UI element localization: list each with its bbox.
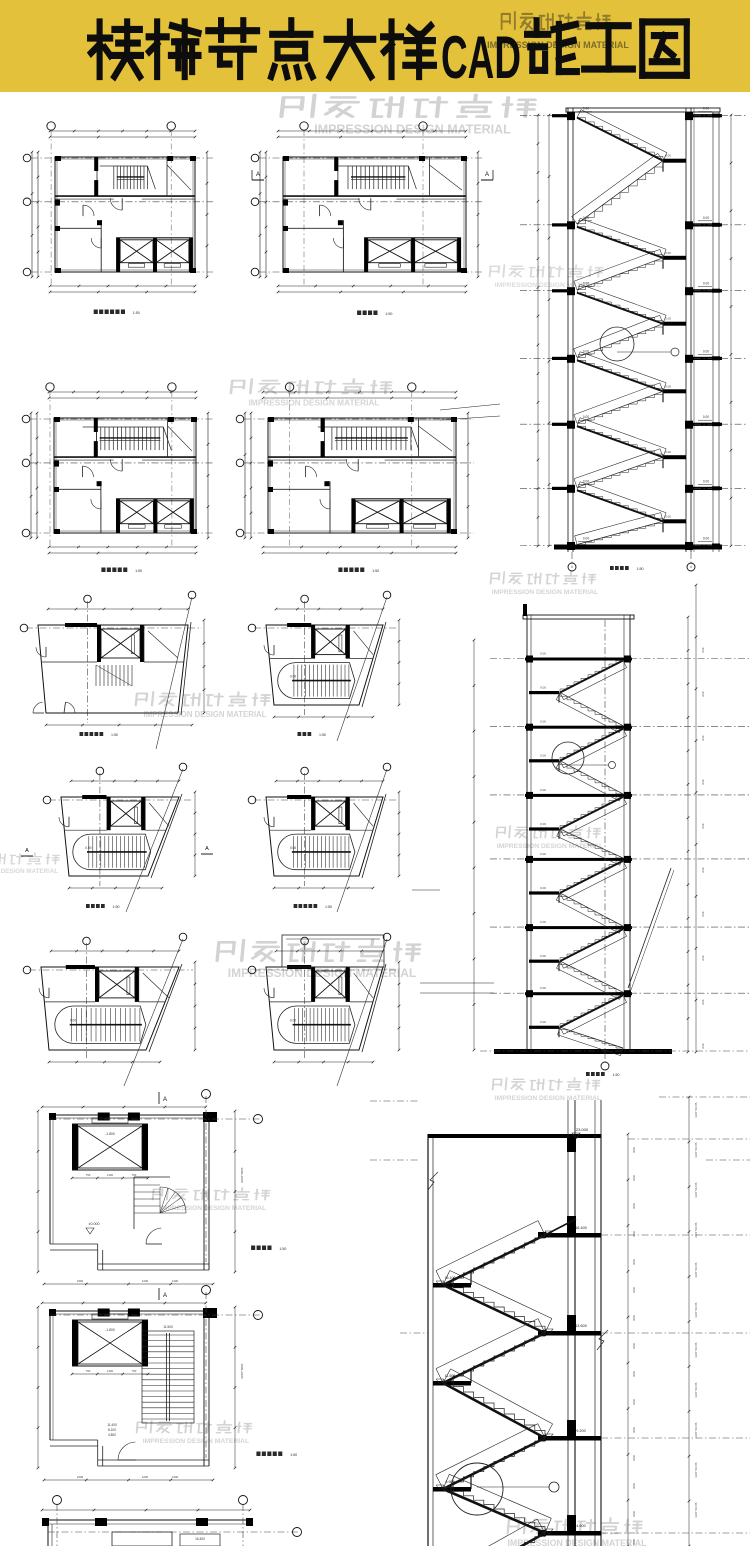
svg-text:4500: 4500 xyxy=(632,1231,636,1238)
svg-text:4500: 4500 xyxy=(632,1483,636,1490)
svg-text:0.00: 0.00 xyxy=(583,415,589,419)
svg-text:0.00: 0.00 xyxy=(583,282,589,286)
svg-text:1:50: 1:50 xyxy=(613,1073,620,1077)
svg-text:1:50: 1:50 xyxy=(279,1247,286,1251)
svg-text:8.100: 8.100 xyxy=(108,1428,116,1432)
svg-text:W4.50+4200: W4.50+4200 xyxy=(694,1503,698,1518)
svg-text:4500: 4500 xyxy=(632,1175,636,1182)
svg-text:1:50: 1:50 xyxy=(325,905,332,909)
svg-text:0.00: 0.00 xyxy=(290,675,296,679)
svg-text:4.800: 4.800 xyxy=(108,1433,116,1437)
svg-text:0.00: 0.00 xyxy=(540,788,546,792)
svg-text:4500: 4500 xyxy=(701,647,705,653)
svg-text:0.00: 0.00 xyxy=(540,652,546,656)
svg-text:3600+2300: 3600+2300 xyxy=(240,1167,244,1182)
svg-text:IMPRESSION DESIGN MATERIAL: IMPRESSION DESIGN MATERIAL xyxy=(160,1205,266,1212)
svg-text:4500: 4500 xyxy=(701,955,705,961)
svg-text:IMPRESSION DESIGN MATERIAL: IMPRESSION DESIGN MATERIAL xyxy=(143,1438,249,1445)
svg-text:750: 750 xyxy=(132,1369,137,1373)
svg-text:1:50: 1:50 xyxy=(319,733,326,737)
svg-text:750: 750 xyxy=(86,1369,91,1373)
svg-text:1:50: 1:50 xyxy=(372,569,379,573)
svg-text:IMPRESSION DESIGN MATERIAL: IMPRESSION DESIGN MATERIAL xyxy=(497,843,603,850)
svg-text:A: A xyxy=(485,172,489,178)
svg-text:4500: 4500 xyxy=(632,1315,636,1322)
svg-text:IMPRESSION DESIGN MATERIAL: IMPRESSION DESIGN MATERIAL xyxy=(228,966,416,980)
svg-text:A: A xyxy=(205,846,209,852)
svg-text:A: A xyxy=(256,172,260,178)
svg-text:W4.50+4200: W4.50+4200 xyxy=(694,1303,698,1318)
svg-text:1:50: 1:50 xyxy=(113,905,120,909)
svg-text:4500: 4500 xyxy=(632,1371,636,1378)
svg-text:0.00: 0.00 xyxy=(540,920,546,924)
svg-text:W4.50+4200: W4.50+4200 xyxy=(694,1103,698,1118)
svg-text:4500: 4500 xyxy=(632,1539,636,1546)
svg-text:0.00: 0.00 xyxy=(70,1019,76,1023)
svg-text:4500: 4500 xyxy=(632,1287,636,1294)
svg-text:0.00: 0.00 xyxy=(665,450,671,454)
svg-text:4500: 4500 xyxy=(632,1203,636,1210)
svg-text:1400: 1400 xyxy=(172,1475,179,1479)
svg-text:4500: 4500 xyxy=(632,1511,636,1518)
svg-text:0.00: 0.00 xyxy=(540,1020,546,1024)
svg-text:1:50: 1:50 xyxy=(385,312,392,316)
svg-text:0.00: 0.00 xyxy=(665,384,671,388)
svg-text:A: A xyxy=(25,848,29,854)
svg-text:W4.50+4200: W4.50+4200 xyxy=(694,1263,698,1278)
svg-text:4500: 4500 xyxy=(632,1147,636,1154)
svg-text:1200: 1200 xyxy=(142,1279,149,1283)
svg-text:1200: 1200 xyxy=(142,1475,149,1479)
svg-text:0.00: 0.00 xyxy=(540,720,546,724)
svg-text:750: 750 xyxy=(86,1173,91,1177)
svg-text:11.500: 11.500 xyxy=(163,1325,173,1329)
svg-text:4500: 4500 xyxy=(701,911,705,917)
svg-text:IMPRESSION DESIGN MATERIAL: IMPRESSION DESIGN MATERIAL xyxy=(495,1095,601,1102)
svg-text:4500: 4500 xyxy=(701,779,705,785)
svg-text:23.000: 23.000 xyxy=(576,1127,589,1132)
svg-text:A: A xyxy=(163,1097,167,1103)
svg-text:0.00: 0.00 xyxy=(540,954,546,958)
svg-text:2400: 2400 xyxy=(77,1279,84,1283)
svg-text:W4.50+4200: W4.50+4200 xyxy=(694,1183,698,1198)
svg-text:W4.50+4200: W4.50+4200 xyxy=(694,1383,698,1398)
svg-text:4500: 4500 xyxy=(632,1399,636,1406)
svg-text:W4.50+4200: W4.50+4200 xyxy=(694,1143,698,1158)
svg-text:0.00: 0.00 xyxy=(540,886,546,890)
svg-text:0.00: 0.00 xyxy=(703,349,709,353)
svg-text:750: 750 xyxy=(132,1173,137,1177)
svg-text:4500: 4500 xyxy=(701,867,705,873)
svg-text:A: A xyxy=(163,1293,167,1299)
svg-text:1400: 1400 xyxy=(172,1279,179,1283)
svg-text:0.00: 0.00 xyxy=(540,852,546,856)
svg-text:4500: 4500 xyxy=(701,1043,705,1049)
svg-text:11.400: 11.400 xyxy=(107,1423,117,1427)
svg-text:0.00: 0.00 xyxy=(290,1019,296,1023)
svg-text:0.00: 0.00 xyxy=(665,251,671,255)
svg-text:0.00: 0.00 xyxy=(540,686,546,690)
svg-text:0.00: 0.00 xyxy=(703,479,709,483)
svg-text:CAD: CAD xyxy=(441,24,521,91)
svg-text:0.00: 0.00 xyxy=(703,415,709,419)
svg-text:1:50: 1:50 xyxy=(133,311,140,315)
svg-text:1:50: 1:50 xyxy=(111,733,118,737)
svg-text:16.300: 16.300 xyxy=(195,1537,205,1541)
svg-text:1:50: 1:50 xyxy=(637,567,644,571)
svg-text:0.00: 0.00 xyxy=(540,822,546,826)
svg-text:4500: 4500 xyxy=(701,823,705,829)
svg-text:IMPRESSION DESIGN MATERIAL: IMPRESSION DESIGN MATERIAL xyxy=(144,710,267,719)
svg-text:4500: 4500 xyxy=(632,1343,636,1350)
svg-text:IMPRESSION DESIGN MATERIAL: IMPRESSION DESIGN MATERIAL xyxy=(0,868,58,875)
svg-text:4500: 4500 xyxy=(701,735,705,741)
svg-text:W4.50+4200: W4.50+4200 xyxy=(694,1423,698,1438)
svg-text:16.400: 16.400 xyxy=(575,1226,587,1230)
svg-text:0.00: 0.00 xyxy=(703,107,709,111)
svg-text:W4.50+4200: W4.50+4200 xyxy=(694,1223,698,1238)
svg-text:0.00: 0.00 xyxy=(540,754,546,758)
svg-text:2400: 2400 xyxy=(77,1475,84,1479)
svg-text:IMPRESSION DESIGN MATERIAL: IMPRESSION DESIGN MATERIAL xyxy=(248,397,379,407)
svg-text:0.00: 0.00 xyxy=(290,846,296,850)
svg-text:4500: 4500 xyxy=(632,1259,636,1266)
svg-text:0.00: 0.00 xyxy=(665,317,671,321)
svg-text:-1.800: -1.800 xyxy=(105,1328,115,1332)
svg-text:1100: 1100 xyxy=(107,1369,113,1373)
svg-text:IMPRESSION DESIGN MATERIAL: IMPRESSION DESIGN MATERIAL xyxy=(492,589,598,596)
svg-text:0.00: 0.00 xyxy=(583,537,589,541)
svg-text:W4.50+4200: W4.50+4200 xyxy=(694,1343,698,1358)
svg-text:0.00: 0.00 xyxy=(583,479,589,483)
svg-text:1100: 1100 xyxy=(107,1173,113,1177)
svg-text:0.00: 0.00 xyxy=(703,282,709,286)
svg-text:W4.50+4200: W4.50+4200 xyxy=(694,1463,698,1478)
svg-text:0.00: 0.00 xyxy=(665,514,671,518)
svg-text:4500: 4500 xyxy=(701,999,705,1005)
svg-text:4500: 4500 xyxy=(632,1427,636,1434)
svg-text:1:50: 1:50 xyxy=(135,569,142,573)
svg-text:1:50: 1:50 xyxy=(290,1453,297,1457)
svg-text:0.00: 0.00 xyxy=(540,986,546,990)
svg-text:9.200: 9.200 xyxy=(576,1429,586,1433)
svg-text:0.00: 0.00 xyxy=(703,537,709,541)
svg-text:13.600: 13.600 xyxy=(575,1324,587,1328)
svg-text:0.00: 0.00 xyxy=(85,846,91,850)
svg-text:4500: 4500 xyxy=(701,691,705,697)
svg-text:0.00: 0.00 xyxy=(583,107,589,111)
svg-text:3600+2300: 3600+2300 xyxy=(240,1363,244,1378)
svg-text:±0.000: ±0.000 xyxy=(89,1222,100,1226)
svg-text:4.600: 4.600 xyxy=(576,1524,586,1528)
svg-text:4500: 4500 xyxy=(632,1455,636,1462)
svg-text:0.00: 0.00 xyxy=(703,216,709,220)
svg-text:-1.800: -1.800 xyxy=(105,1132,115,1136)
svg-text:IMPRESSION DESIGN MATERIAL: IMPRESSION DESIGN MATERIAL xyxy=(314,123,511,137)
